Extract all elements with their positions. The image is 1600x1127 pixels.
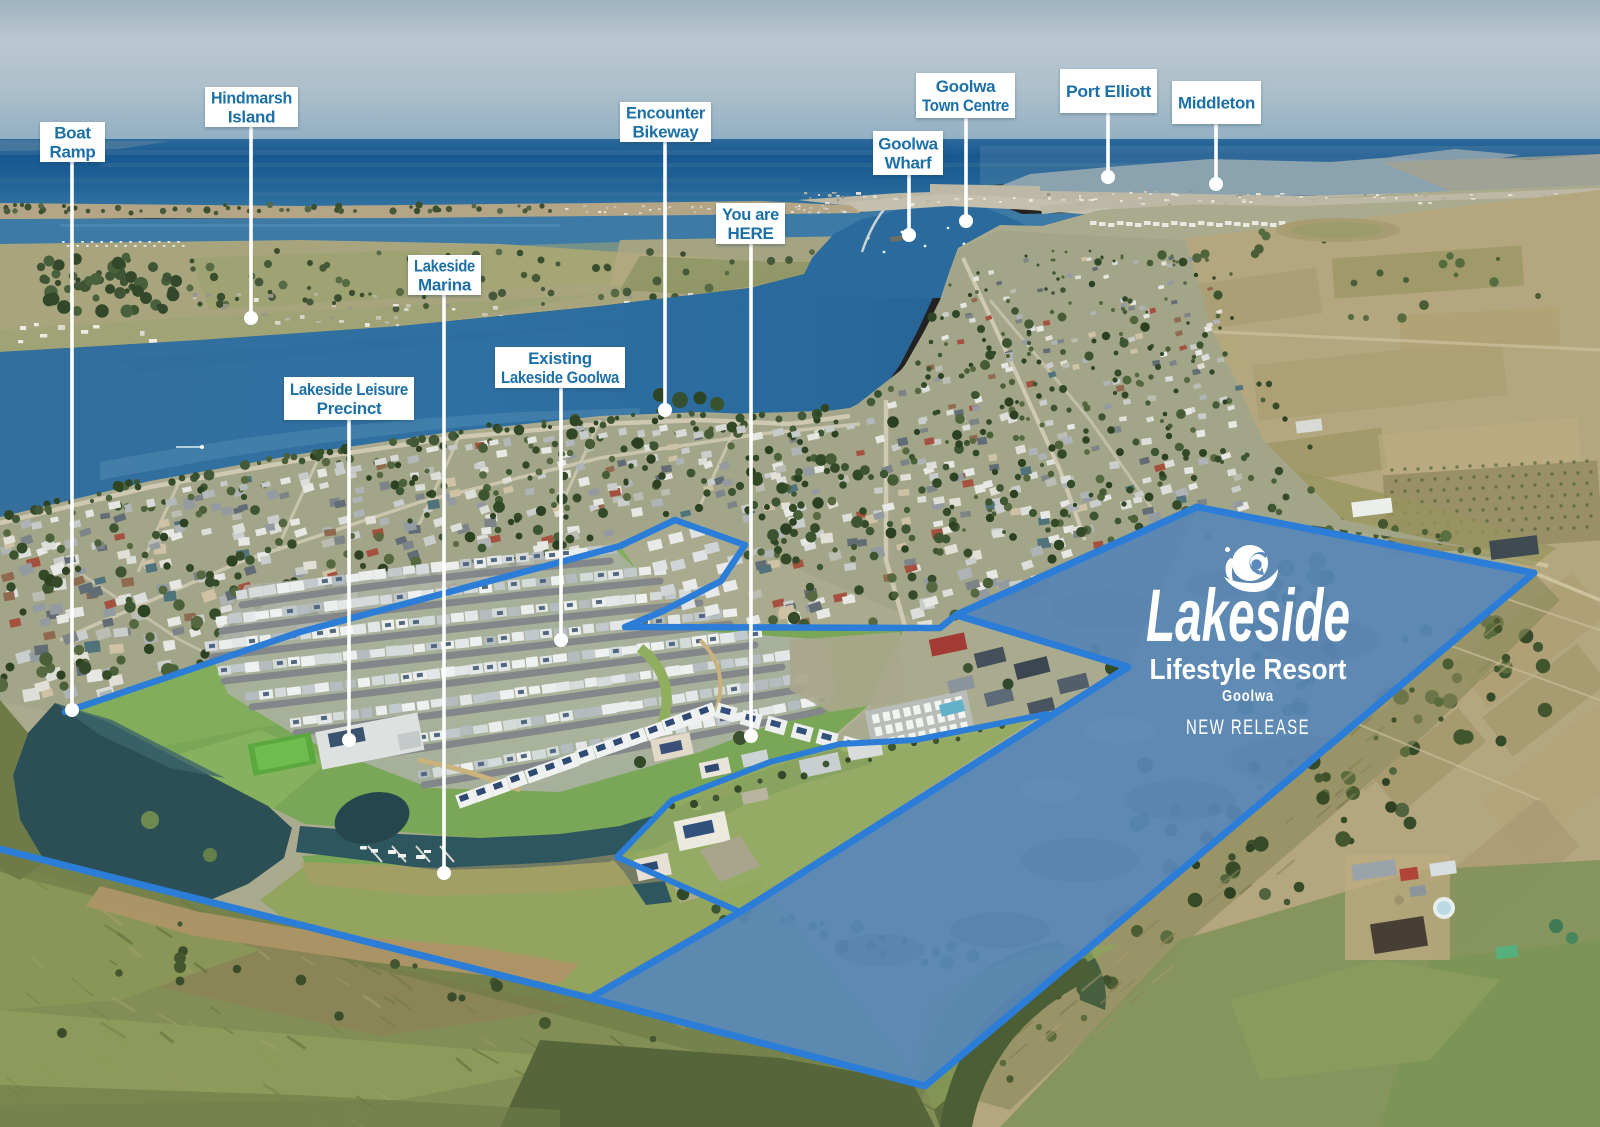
svg-text:Goolwa: Goolwa bbox=[878, 135, 938, 154]
svg-text:Bikeway: Bikeway bbox=[633, 123, 700, 142]
svg-text:Existing: Existing bbox=[528, 349, 592, 368]
svg-text:Lakeside Leisure: Lakeside Leisure bbox=[290, 380, 408, 399]
svg-text:Encounter: Encounter bbox=[626, 104, 706, 123]
svg-text:Boat: Boat bbox=[54, 124, 91, 143]
svg-text:Precinct: Precinct bbox=[317, 399, 382, 418]
svg-text:Ramp: Ramp bbox=[49, 143, 95, 162]
svg-text:HERE: HERE bbox=[727, 224, 773, 243]
svg-text:Marina: Marina bbox=[418, 276, 472, 295]
svg-text:Goolwa: Goolwa bbox=[1222, 688, 1274, 705]
svg-text:Town Centre: Town Centre bbox=[922, 96, 1009, 115]
svg-text:Lifestyle Resort: Lifestyle Resort bbox=[1150, 654, 1347, 686]
svg-text:NEW RELEASE: NEW RELEASE bbox=[1186, 716, 1310, 739]
svg-text:Port Elliott: Port Elliott bbox=[1066, 82, 1152, 101]
svg-text:Hindmarsh: Hindmarsh bbox=[211, 89, 292, 108]
svg-text:Wharf: Wharf bbox=[885, 154, 932, 173]
svg-text:You are: You are bbox=[722, 205, 779, 224]
svg-text:Lakeside: Lakeside bbox=[414, 257, 475, 276]
svg-text:Island: Island bbox=[228, 108, 275, 127]
svg-text:Lakeside Goolwa: Lakeside Goolwa bbox=[501, 368, 620, 387]
svg-text:Lakeside: Lakeside bbox=[1146, 574, 1350, 657]
svg-text:Middleton: Middleton bbox=[1178, 94, 1255, 113]
svg-text:Goolwa: Goolwa bbox=[936, 77, 996, 96]
